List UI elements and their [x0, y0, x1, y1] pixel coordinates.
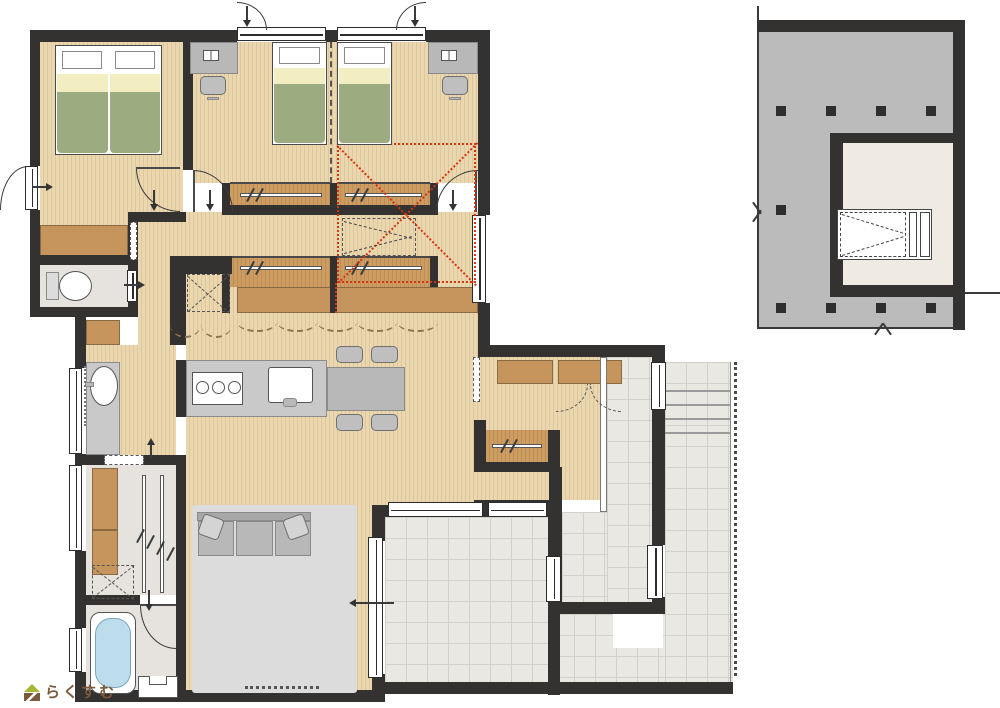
counter-open-arc — [277, 312, 317, 332]
loft-post — [776, 106, 786, 116]
wall-segment — [652, 345, 665, 362]
wall-segment — [326, 30, 337, 42]
kitchen-faucet — [283, 398, 297, 407]
bed-sheet-fold — [110, 74, 160, 94]
pantry-curtain-arc — [201, 310, 232, 338]
logo-base-icon — [24, 693, 40, 701]
loft-ladder-dashed-box — [840, 212, 906, 257]
wall-segment — [480, 345, 665, 357]
door-arrow — [124, 284, 138, 286]
logo-roof-icon — [24, 684, 40, 692]
door-leaf — [193, 170, 195, 212]
loft-post — [826, 106, 836, 116]
sofa-seat — [236, 521, 273, 556]
bed-blanket — [57, 92, 108, 153]
drying-pole — [160, 475, 164, 593]
toilet-bowl — [59, 271, 92, 301]
washbasin-upper-cabinet — [86, 320, 120, 345]
door-arrow-head — [145, 604, 153, 611]
door-arrow-head — [147, 438, 155, 445]
door-arrow-head — [138, 281, 145, 289]
slider-arrow-head — [349, 599, 356, 607]
window-living-terrace-slider — [368, 537, 383, 678]
laundry-pocket-door — [104, 455, 144, 465]
shoe-cabinet-left — [497, 360, 553, 384]
wall-segment — [474, 420, 486, 462]
bed-pillow — [115, 51, 155, 69]
window-terrace-north-right — [488, 502, 547, 517]
loft-post — [826, 303, 836, 313]
loft-post — [926, 303, 936, 313]
counter-open-arc — [317, 312, 357, 332]
hall-pocket-door — [473, 357, 480, 402]
approach-step-line — [665, 404, 730, 406]
wall-segment — [30, 255, 128, 265]
door-arrow — [452, 190, 454, 204]
door-arrow-head — [150, 204, 158, 211]
door-arrow — [153, 190, 155, 204]
logo: らくすむ — [24, 682, 184, 702]
bed-pillow — [279, 47, 320, 64]
bed-sheet-fold — [57, 74, 108, 94]
door-arrow-head — [206, 204, 214, 211]
loft-post — [776, 303, 786, 313]
bed-blanket — [339, 84, 390, 143]
swing-arrow — [246, 6, 248, 20]
bed-pillow — [62, 51, 102, 69]
wall-segment — [75, 551, 86, 628]
chair-base — [449, 97, 461, 100]
door-leaf — [136, 167, 180, 169]
closet-front-line — [230, 256, 330, 258]
cooktop-burner — [228, 381, 241, 394]
hanger-pole — [492, 444, 542, 448]
door-arrow — [148, 590, 150, 604]
floor-plan-canvas: らくすむ — [0, 0, 1000, 708]
bed-pillow — [344, 47, 385, 64]
cooktop-burner — [196, 381, 209, 394]
loft-outline-stub — [335, 283, 337, 313]
hall-strip-floor — [138, 258, 170, 345]
dining-chair — [371, 346, 398, 363]
wall-segment — [222, 205, 330, 215]
approach-step-line — [665, 432, 730, 434]
wall-segment — [652, 410, 665, 545]
washbasin-sink — [90, 366, 118, 406]
washbasin-faucet — [85, 382, 94, 387]
loft-post — [926, 106, 936, 116]
wall-segment — [30, 30, 237, 42]
closet-front-line — [230, 182, 330, 184]
wall-segment — [330, 183, 337, 215]
bed-blanket — [274, 84, 325, 143]
wall-segment — [552, 602, 665, 614]
wall-segment — [30, 307, 137, 317]
door-arrow-head — [449, 204, 457, 211]
shoe-cabinet-right — [558, 360, 622, 384]
casement-arc-window-bedroom2 — [237, 2, 267, 30]
chair-base — [207, 97, 219, 100]
casement-arc-window-bedroom-main — [0, 166, 28, 210]
loft-room-wall-bottom — [830, 285, 953, 297]
loft-wall-right — [953, 20, 965, 330]
approach-step-line — [665, 390, 730, 392]
porch-notch — [613, 614, 663, 648]
wall-segment — [75, 317, 86, 368]
desk-chair-bedroom3 — [442, 76, 468, 95]
loft-post — [776, 205, 786, 215]
book-icon — [441, 50, 457, 61]
bathtub — [95, 618, 131, 688]
loft-edge-line-left — [757, 32, 759, 328]
loft-ladder-rail — [920, 212, 930, 257]
toilet-sliding-door — [127, 270, 137, 302]
dining-chair — [336, 346, 363, 363]
window-bathroom — [69, 628, 82, 672]
toilet-tank — [46, 272, 59, 300]
bed-blanket — [110, 92, 160, 153]
toilet-pocket-slot — [130, 222, 137, 260]
counter-row — [237, 287, 478, 313]
logo-house-icon — [24, 684, 40, 701]
wall-segment — [30, 30, 40, 166]
approach-edge-line — [730, 362, 731, 682]
door-arrow — [209, 190, 211, 204]
wall-segment — [548, 598, 560, 695]
slider-arrow — [356, 602, 394, 604]
loft-wall-extension — [965, 292, 1000, 294]
mirror-dotted — [84, 366, 86, 426]
genkan-step-edge — [600, 357, 607, 512]
swing-arrow — [414, 6, 416, 20]
swing-arrow-head — [243, 20, 251, 27]
counter-open-arc — [397, 312, 438, 332]
property-dotted-line — [734, 362, 737, 676]
loft-post — [876, 106, 886, 116]
dining-table — [327, 367, 405, 411]
front-door — [651, 362, 666, 410]
wall-segment — [548, 517, 560, 558]
wall-segment — [372, 682, 733, 694]
bedroom-partition-dashed — [330, 42, 332, 183]
approach-tile-floor — [665, 362, 730, 682]
wall-segment — [75, 454, 86, 465]
closet-corridor-left — [230, 258, 330, 287]
approach-step-line — [665, 418, 730, 420]
counter-open-arc — [357, 312, 397, 332]
wall-segment — [548, 430, 560, 462]
window-terrace-north-left — [388, 502, 483, 517]
loft-edge-stub-top — [757, 6, 759, 20]
loft-room-wall-top — [830, 133, 953, 143]
window-terrace-east — [546, 556, 561, 602]
wall-segment — [478, 30, 490, 215]
loft-edge-line-bottom — [757, 327, 955, 329]
cooktop-burner — [212, 381, 225, 394]
wall-segment — [474, 462, 560, 472]
tv-dotted-strip — [245, 686, 319, 689]
dining-chair — [336, 414, 363, 431]
genkan-tile-floor-lower — [562, 512, 607, 602]
window-washbasin — [69, 368, 82, 454]
desk-chair-bedroom2 — [200, 76, 226, 95]
swing-arrow — [32, 186, 46, 188]
pantry-curtain-arc — [170, 310, 201, 338]
wall-segment — [138, 212, 186, 222]
dining-chair — [371, 414, 398, 431]
bedroom-main-counter — [40, 225, 128, 257]
counter-open-arc — [237, 312, 277, 332]
terrace-tile-floor — [385, 517, 548, 682]
loft-ladder-rail — [909, 212, 917, 257]
loft-wall-top — [757, 20, 965, 32]
door-arrow — [150, 444, 152, 458]
book-icon — [203, 50, 219, 61]
swing-arrow-head — [411, 20, 419, 27]
loft-post — [876, 303, 886, 313]
laundry-cabinet-upper — [92, 468, 118, 530]
logo-text: らくすむ — [45, 684, 117, 701]
swing-arrow-head — [46, 183, 53, 191]
window-genkan-east — [647, 545, 663, 599]
window-laundry — [69, 465, 82, 551]
wall-segment — [176, 455, 186, 700]
